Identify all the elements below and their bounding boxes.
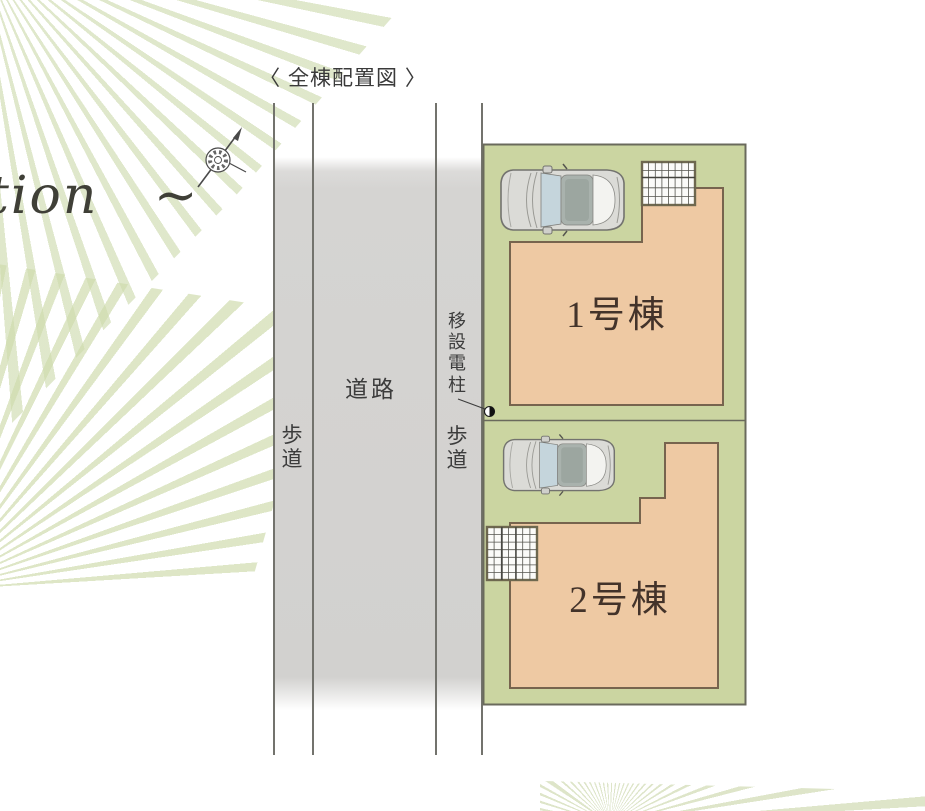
lattice-deck-2 <box>487 527 537 580</box>
site-plan-page: tion ~ 〈 全棟配置図 〉 歩道 道路 移設電柱 歩道 <box>0 0 925 811</box>
parcels: 1号棟 2号棟 <box>483 145 746 705</box>
site-plan-drawing: 1号棟 2号棟 <box>0 0 925 811</box>
lattice-deck-1 <box>642 162 695 205</box>
car-2-icon <box>504 434 615 495</box>
building-2-label: 2号棟 <box>569 580 671 621</box>
pole-leader-line <box>458 399 485 409</box>
car-1-icon <box>501 164 624 236</box>
building-1-label: 1号棟 <box>566 295 668 336</box>
compass-north-icon <box>198 127 246 187</box>
